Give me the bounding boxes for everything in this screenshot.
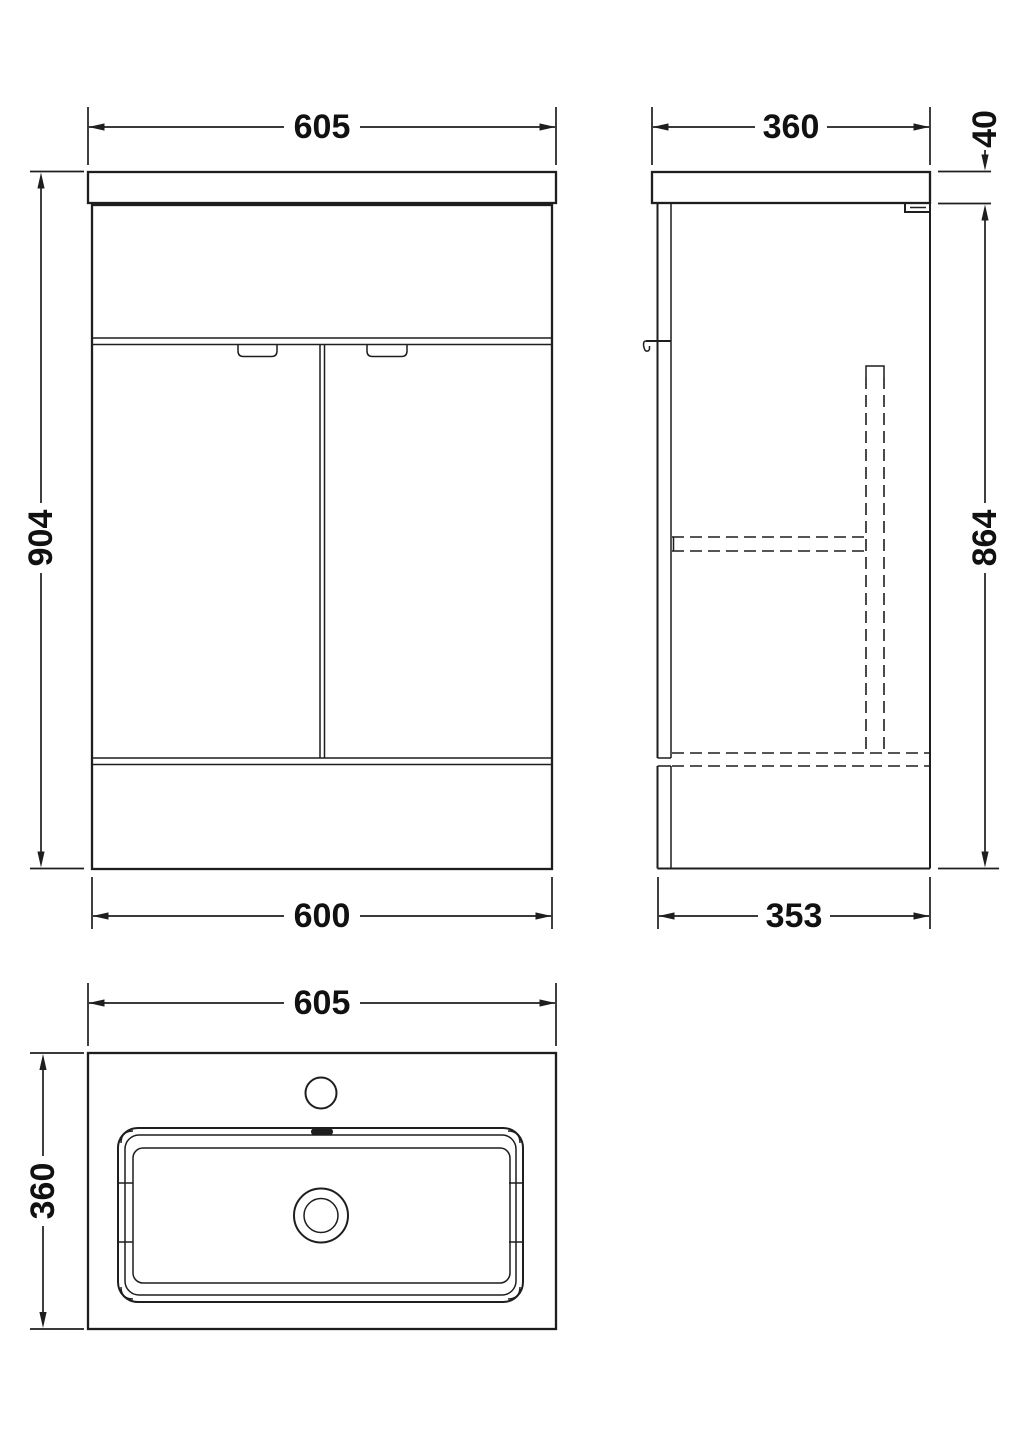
plan-basin-outer-rim: [118, 1128, 523, 1302]
front-left-door-handle: [238, 345, 277, 357]
front-view: 605 904 60: [22, 107, 556, 935]
side-worktop-thickness-label: 40: [966, 110, 1004, 148]
arrowhead-left: [653, 123, 669, 130]
side-waste-pipe-cap: [866, 366, 884, 377]
arrowhead-up: [37, 173, 44, 189]
arrowhead-down: [39, 1312, 46, 1328]
plan-tap-hole: [306, 1078, 337, 1109]
side-dim-depth-bottom: 353: [658, 877, 930, 935]
arrowhead-left: [89, 999, 105, 1006]
side-countertop: [652, 172, 930, 203]
plan-depth-label: 360: [24, 1163, 62, 1220]
arrowhead-down: [981, 155, 988, 171]
arrowhead-up: [39, 1054, 46, 1070]
front-width-bottom-label: 600: [294, 897, 351, 935]
plan-basin-mid-rim: [125, 1135, 516, 1295]
side-view: 360 40: [644, 107, 1004, 935]
side-dim-depth-top: 360: [652, 107, 930, 165]
side-depth-top-label: 360: [763, 108, 820, 146]
front-width-top-label: 605: [294, 108, 351, 146]
vanity-technical-drawing: 605 904 60: [0, 0, 1024, 1449]
arrowhead-down: [981, 852, 988, 868]
arrowhead-left: [89, 123, 105, 130]
arrowhead-right: [536, 912, 552, 919]
side-depth-bottom-label: 353: [766, 897, 823, 935]
side-door-handle-hook: [644, 341, 650, 351]
front-cabinet-body: [92, 205, 552, 869]
front-dim-height: 904: [22, 172, 84, 869]
arrowhead-left: [659, 912, 675, 919]
plan-worktop-outline: [88, 1053, 556, 1329]
arrowhead-right: [914, 912, 930, 919]
arrowhead-down: [37, 852, 44, 868]
plan-overflow-slot: [311, 1129, 333, 1136]
front-right-door-handle: [367, 345, 407, 357]
plan-waste-inner: [304, 1199, 338, 1233]
arrowhead-right: [540, 123, 556, 130]
front-dim-width-bottom: 600: [92, 877, 552, 935]
arrowhead-right: [914, 123, 930, 130]
technical-drawing-page: 605 904 60: [0, 0, 1024, 1449]
plan-basin-floor-edge: [133, 1148, 510, 1283]
front-countertop: [88, 172, 556, 203]
front-dim-width-top: 605: [88, 107, 556, 165]
plan-width-label: 605: [294, 984, 351, 1022]
front-height-label: 904: [22, 510, 60, 567]
plan-dim-width: 605: [88, 983, 556, 1046]
side-dim-worktop-thickness: 40: [938, 110, 1004, 203]
plan-view: 605 360: [24, 983, 556, 1329]
side-cabinet-height-label: 864: [966, 510, 1004, 567]
arrowhead-right: [540, 999, 556, 1006]
arrowhead-up: [981, 205, 988, 221]
plan-waste-outer: [294, 1189, 348, 1243]
side-dim-cabinet-height: 864: [938, 205, 1004, 869]
plan-dim-depth: 360: [24, 1053, 84, 1329]
arrowhead-left: [93, 912, 109, 919]
